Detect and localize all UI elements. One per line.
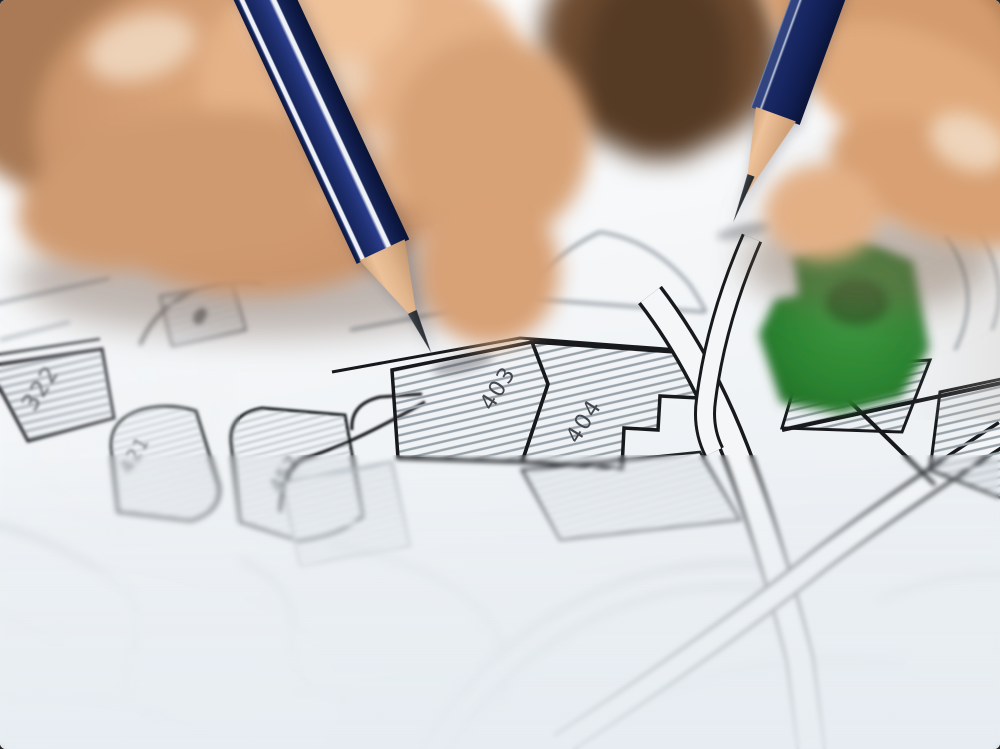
- right-hand-fingertip: [765, 165, 880, 260]
- photo-scene: 322 421 452 403 404 42: [0, 0, 1000, 749]
- left-pencil-graphite-tip: [403, 308, 440, 357]
